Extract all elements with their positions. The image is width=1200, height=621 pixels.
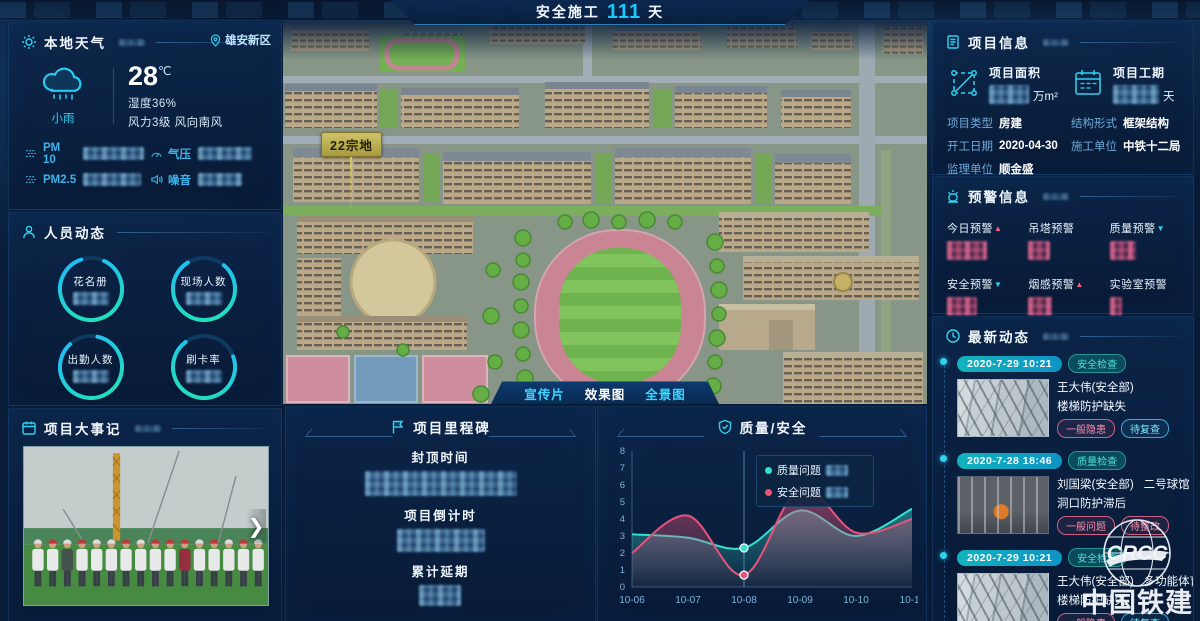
area-measure-icon (947, 66, 981, 100)
document-icon (945, 34, 961, 50)
legend-label: 质量问题 (777, 462, 821, 478)
trend-up-icon: ▲ (1075, 280, 1083, 289)
alert-lab: 实验室预警 (1110, 276, 1185, 316)
ring-roster-value-redacted (73, 292, 109, 305)
trend-up-icon: ▲ (994, 224, 1002, 233)
redacted-header-note (1043, 193, 1069, 200)
feed-location: 多功能体育馆 (1144, 573, 1194, 589)
alert-smoke-value-redacted (1028, 297, 1052, 316)
metric-pm10: PM 10 (25, 142, 144, 166)
stat-duration-value-redacted (1113, 85, 1159, 104)
ring-swipe-rate-value-redacted (186, 370, 222, 383)
field-supervisor: 监理单位 顺金盛 (947, 161, 1065, 177)
metric-pressure-value-redacted (198, 147, 252, 160)
issue-tag: 一般问题 (1057, 516, 1115, 535)
redacted-header-note (1043, 333, 1069, 340)
svg-text:10-07: 10-07 (675, 595, 701, 606)
chart-tooltip: 质量问题安全问题 (756, 455, 874, 507)
hazard-tag: 一般隐患 (1057, 613, 1115, 621)
stat-area-unit: 万m² (1033, 88, 1058, 104)
chart-legend-entry: 安全问题 (765, 484, 865, 500)
particles-icon (25, 148, 38, 159)
event-photo: ❯ (23, 446, 269, 606)
feed-title: 最新动态 (968, 326, 1030, 346)
milestone-countdown: 项目倒计时 (397, 505, 485, 552)
flag-icon (390, 419, 406, 435)
feed-type-pill: 安全检查 (1068, 548, 1126, 567)
events-title: 项目大事记 (44, 418, 122, 438)
metric-pm10-value-redacted (83, 147, 144, 160)
gauge-icon (150, 148, 163, 159)
weather-title: 本地天气 (44, 32, 106, 52)
legend-value-redacted (826, 465, 848, 476)
feed-item[interactable]: 2020-7-29 10:21 安全检查 王大伟(安全部) 楼梯防护缺失 一般隐… (957, 354, 1187, 438)
weather-panel: 本地天气 雄安新区 小雨 28℃ 湿度36% 风力3级 风向南风 (8, 22, 282, 210)
safety-days-banner: 安全施工 111 天 (390, 0, 810, 25)
feed-item[interactable]: 2020-7-28 18:46 质量检查 刘国梁(安全部)二号球馆 洞口防护滞后… (957, 451, 1187, 535)
stat-area-value-redacted (989, 85, 1029, 104)
svg-text:7: 7 (620, 463, 625, 474)
stat-project-area: 项目面积 万m² (947, 64, 1063, 104)
shield-check-icon (717, 419, 733, 435)
status-tag: 待整改 (1121, 516, 1169, 535)
ring-onsite-label: 现场人数 (181, 274, 227, 289)
quality-chart[interactable]: 01234567810-0610-0710-0810-0910-1010-11 … (606, 439, 920, 621)
alert-crane-value-redacted (1028, 241, 1050, 260)
metric-pm25: PM2.5 (25, 172, 144, 188)
safety-days-suffix: 天 (648, 2, 664, 22)
ring-onsite[interactable]: 现场人数 (167, 252, 241, 326)
location-label: 雄安新区 (225, 32, 271, 48)
redacted-header-note (1043, 39, 1069, 46)
svg-text:3: 3 (620, 531, 625, 542)
ring-attendance-label: 出勤人数 (68, 352, 114, 367)
svg-text:10-08: 10-08 (731, 595, 757, 606)
calendar-icon (1071, 66, 1105, 100)
speaker-icon (150, 174, 163, 185)
milestone-topping-label: 封顶时间 (411, 447, 469, 466)
alert-smoke: 烟感预警▲ (1028, 276, 1103, 316)
alert-lab-value-redacted (1110, 297, 1122, 316)
parcel-marker[interactable]: 22宗地 (321, 132, 382, 209)
milestone-topping-time: 封顶时间 (365, 447, 517, 496)
chart-legend-entry: 质量问题 (765, 462, 865, 478)
svg-text:4: 4 (620, 514, 625, 525)
feed-date-pill: 2020-7-29 10:21 (957, 550, 1062, 566)
project-info-title: 项目信息 (968, 32, 1030, 52)
svg-text:6: 6 (620, 480, 625, 491)
feed-photo (957, 476, 1049, 534)
milestone-topping-value-redacted (365, 471, 517, 496)
legend-dot-icon (765, 467, 772, 474)
alert-today: 今日预警▲ (947, 220, 1022, 260)
3d-scene-viewport[interactable]: 22宗地 宣传片 效果图 全景图 (283, 20, 927, 404)
safety-days-prefix: 安全施工 (536, 2, 600, 22)
person-icon (21, 224, 37, 240)
timeline-dot (940, 358, 947, 365)
metric-pm10-label: PM 10 (43, 142, 76, 166)
weather-condition: 小雨 (27, 110, 99, 126)
trend-down-icon: ▼ (994, 280, 1002, 289)
quality-safety-panel: 质量/安全 01234567810-0610-0710-0810-0910-10… (597, 406, 927, 621)
field-structure-type: 结构形式 框架结构 (1071, 115, 1185, 131)
legend-value-redacted (826, 487, 848, 498)
alert-safety-value-redacted (947, 297, 977, 316)
ring-attendance[interactable]: 出勤人数 (54, 330, 128, 404)
clock-icon (945, 328, 961, 344)
svg-text:10-11: 10-11 (900, 595, 918, 606)
tab-promo-video[interactable]: 宣传片 (524, 384, 565, 403)
svg-text:0: 0 (620, 582, 625, 593)
feed-item[interactable]: 2020-7-29 10:21 安全检查 王大伟(安全部)多功能体育馆 楼梯防护… (957, 548, 1187, 621)
ring-swipe-rate-label: 刷卡率 (186, 352, 221, 367)
alert-quality-value-redacted (1110, 241, 1136, 260)
stat-area-label: 项目面积 (989, 64, 1058, 81)
ring-swipe-rate[interactable]: 刷卡率 (167, 330, 241, 404)
field-contractor: 施工单位 中铁十二局 (1071, 138, 1185, 154)
metric-noise-value-redacted (198, 173, 242, 186)
redacted-header-note (119, 39, 145, 46)
milestone-delay-value-redacted (419, 585, 461, 606)
alert-safety: 安全预警▼ (947, 276, 1022, 316)
alert-quality: 质量预警▼ (1110, 220, 1185, 260)
stat-duration-label: 项目工期 (1113, 64, 1175, 81)
timeline-rail (944, 360, 945, 621)
svg-text:8: 8 (620, 446, 625, 457)
project-info-panel: 项目信息 项目面积 万m² 项目工期 天 (932, 22, 1194, 175)
legend-dot-icon (765, 489, 772, 496)
metric-pressure: 气压 (150, 142, 269, 166)
timeline-dot (940, 455, 947, 462)
alerts-panel: 预警信息 今日预警▲ 吊塔预警 质量预警▼ 安全预警▼ 烟感预警▲ (932, 176, 1194, 314)
quality-title: 质量/安全 (740, 417, 808, 437)
humidity-text: 湿度36% (128, 95, 223, 111)
feed-date-pill: 2020-7-28 18:46 (957, 453, 1062, 469)
ring-roster[interactable]: 花名册 (54, 252, 128, 326)
metric-pressure-label: 气压 (168, 146, 191, 162)
status-tag: 待复查 (1121, 613, 1169, 621)
metric-pm25-label: PM2.5 (43, 174, 76, 186)
field-project-type: 项目类型 房建 (947, 115, 1065, 131)
feed-type-pill: 安全检查 (1068, 354, 1126, 373)
personnel-rings: 花名册 现场人数 出勤人数 刷卡率 (9, 246, 281, 404)
milestone-delay: 累计延期 (411, 561, 469, 606)
tab-panorama[interactable]: 全景图 (645, 384, 686, 403)
tab-render-view[interactable]: 效果图 (585, 384, 626, 403)
temperature-unit: ℃ (158, 64, 171, 78)
rain-cloud-icon (40, 66, 86, 102)
svg-text:2: 2 (620, 548, 625, 559)
metric-noise-label: 噪音 (168, 172, 191, 188)
feed-panel: 最新动态 2020-7-29 10:21 安全检查 王大伟(安全部) 楼梯防护缺… (932, 316, 1194, 621)
trend-down-icon: ▼ (1157, 224, 1165, 233)
metric-pm25-value-redacted (83, 173, 141, 186)
timeline-dot (940, 552, 947, 559)
ring-roster-label: 花名册 (73, 274, 108, 289)
milestone-countdown-label: 项目倒计时 (404, 505, 477, 524)
stat-duration-unit: 天 (1163, 88, 1175, 104)
feed-photo (957, 573, 1049, 621)
svg-text:5: 5 (620, 497, 625, 508)
svg-text:10-09: 10-09 (787, 595, 813, 606)
svg-text:10-10: 10-10 (843, 595, 869, 606)
calendar-note-icon (21, 420, 37, 436)
milestone-title: 项目里程碑 (413, 417, 491, 437)
feed-type-pill: 质量检查 (1068, 451, 1126, 470)
stat-project-duration: 项目工期 天 (1071, 64, 1187, 104)
wind-text: 风力3级 风向南风 (128, 114, 223, 130)
status-tag: 待复查 (1121, 419, 1169, 438)
milestone-delay-label: 累计延期 (411, 561, 469, 580)
ring-onsite-value-redacted (186, 292, 222, 305)
campus-aerial-render (283, 20, 927, 404)
parcel-marker-pole (350, 157, 352, 209)
alarm-icon (945, 188, 961, 204)
feed-photo (957, 379, 1049, 437)
milestone-countdown-value-redacted (397, 529, 485, 552)
dashboard: 22宗地 宣传片 效果图 全景图 安全施工 111 天 本地天气 雄安新区 (0, 0, 1200, 621)
milestone-panel: 项目里程碑 封顶时间 项目倒计时 累计延期 (285, 406, 596, 621)
ring-attendance-value-redacted (73, 370, 109, 383)
redacted-header-note (135, 425, 161, 432)
events-panel: 项目大事记 ❯ (8, 408, 282, 621)
temperature-value: 28 (128, 61, 158, 91)
particles-icon (25, 174, 38, 185)
personnel-title: 人员动态 (44, 222, 106, 242)
metric-noise: 噪音 (150, 172, 269, 188)
hazard-tag: 一般隐患 (1057, 419, 1115, 438)
location-badge[interactable]: 雄安新区 (210, 32, 271, 48)
alert-crane: 吊塔预警 (1028, 220, 1103, 260)
map-pin-icon (210, 34, 221, 47)
carousel-next-button[interactable]: ❯ (246, 509, 266, 543)
safety-days-count: 111 (607, 2, 641, 22)
feed-location: 二号球馆 (1144, 476, 1190, 492)
personnel-panel: 人员动态 花名册 现场人数 出勤人数 (8, 212, 282, 406)
scene-view-tabs: 宣传片 效果图 全景图 (491, 381, 719, 404)
svg-text:10-06: 10-06 (619, 595, 645, 606)
alert-today-value-redacted (947, 241, 987, 260)
alerts-title: 预警信息 (968, 186, 1030, 206)
legend-label: 安全问题 (777, 484, 821, 500)
svg-text:1: 1 (620, 565, 625, 576)
parcel-marker-label[interactable]: 22宗地 (321, 132, 382, 157)
feed-date-pill: 2020-7-29 10:21 (957, 356, 1062, 372)
field-start-date: 开工日期 2020-04-30 (947, 138, 1065, 154)
sun-icon (21, 34, 37, 50)
